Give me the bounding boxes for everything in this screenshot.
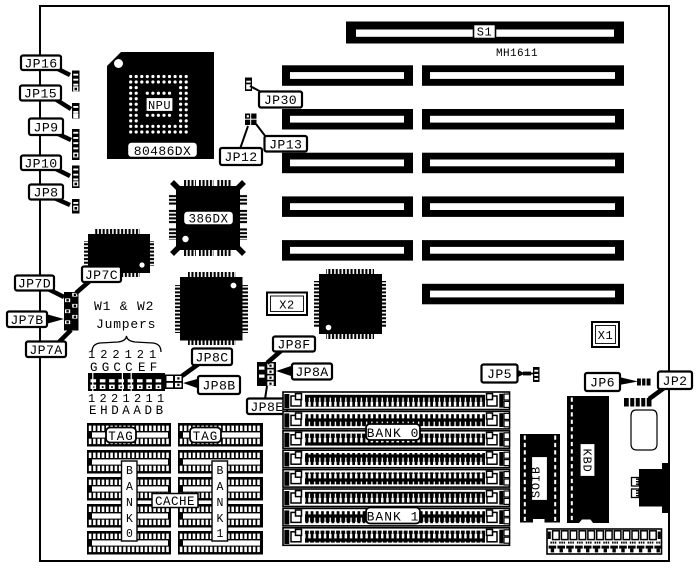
svg-text:JP8B: JP8B [202, 379, 235, 394]
svg-text:386DX: 386DX [188, 213, 228, 227]
svg-text:SOIB: SOIB [530, 466, 544, 498]
svg-text:JP12: JP12 [224, 150, 257, 165]
svg-text:X1: X1 [598, 329, 613, 343]
svg-text:TAG: TAG [193, 430, 219, 444]
svg-text:1: 1 [217, 528, 224, 541]
svg-text:EHDAADB: EHDAADB [89, 404, 167, 418]
svg-text:Jumpers: Jumpers [96, 317, 156, 332]
svg-text:A: A [217, 481, 224, 494]
svg-text:JP7A: JP7A [29, 343, 62, 358]
svg-text:JP30: JP30 [264, 93, 297, 108]
svg-text:JP8A: JP8A [295, 365, 328, 380]
svg-text:S1: S1 [477, 26, 492, 40]
svg-text:JP8F: JP8F [277, 338, 310, 353]
svg-text:80486DX: 80486DX [134, 144, 191, 159]
svg-text:BANK 0: BANK 0 [367, 426, 420, 441]
svg-text:TAG: TAG [108, 430, 134, 444]
svg-text:JP7D: JP7D [18, 277, 51, 292]
svg-text:JP5: JP5 [487, 367, 512, 382]
svg-text:N: N [126, 497, 133, 510]
svg-text:B: B [217, 465, 224, 478]
svg-text:MH1611: MH1611 [496, 48, 538, 60]
svg-text:KBD: KBD [580, 448, 594, 472]
svg-text:K: K [217, 513, 224, 526]
svg-text:JP7C: JP7C [85, 268, 118, 283]
svg-text:X2: X2 [279, 299, 295, 313]
svg-text:NPU: NPU [148, 99, 171, 113]
svg-text:0: 0 [126, 528, 133, 541]
svg-text:JP6: JP6 [590, 376, 615, 391]
svg-text:JP15: JP15 [24, 87, 57, 102]
svg-text:JP9: JP9 [34, 120, 59, 135]
svg-text:EF: EF [138, 361, 161, 375]
svg-text:JP10: JP10 [24, 156, 57, 171]
svg-text:N: N [217, 497, 224, 510]
svg-text:JP2: JP2 [663, 374, 688, 389]
svg-text:JP13: JP13 [269, 137, 302, 152]
svg-text:CACHE: CACHE [155, 495, 195, 509]
svg-text:W1 & W2: W1 & W2 [94, 299, 154, 314]
svg-text:JP16: JP16 [24, 56, 57, 71]
svg-text:JP8: JP8 [34, 186, 59, 201]
svg-text:122121: 122121 [88, 348, 161, 362]
svg-text:K: K [126, 513, 133, 526]
svg-text:GGCC: GGCC [90, 361, 137, 375]
svg-text:BANK 1: BANK 1 [367, 510, 420, 525]
svg-text:JP8E: JP8E [250, 400, 283, 415]
svg-text:JP8C: JP8C [195, 350, 228, 365]
svg-text:JP7B: JP7B [10, 313, 43, 328]
svg-text:A: A [126, 481, 133, 494]
svg-text:B: B [126, 465, 133, 478]
